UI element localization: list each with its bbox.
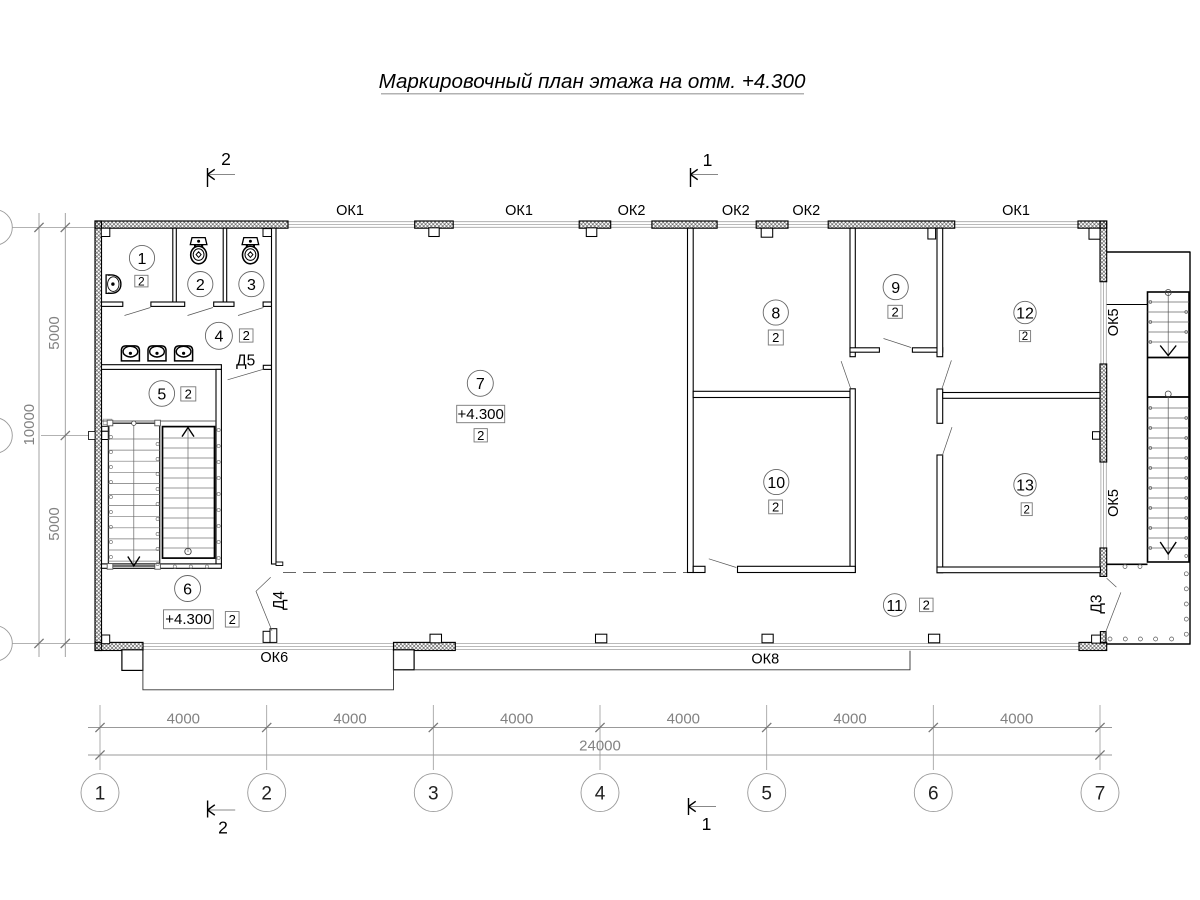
svg-text:Д5: Д5 [236, 353, 255, 370]
svg-text:1: 1 [703, 150, 713, 170]
svg-text:3: 3 [247, 277, 256, 294]
svg-text:8: 8 [771, 305, 780, 322]
svg-text:2: 2 [243, 328, 250, 343]
svg-text:Д4: Д4 [271, 590, 288, 609]
svg-text:4: 4 [595, 783, 606, 804]
svg-text:2: 2 [1023, 504, 1029, 516]
svg-text:ОК5: ОК5 [1106, 489, 1122, 517]
svg-text:2: 2 [923, 598, 930, 613]
svg-text:ОК2: ОК2 [792, 203, 820, 219]
svg-text:ОК1: ОК1 [336, 203, 364, 219]
svg-text:Д3: Д3 [1089, 594, 1106, 613]
svg-text:2: 2 [1022, 331, 1028, 343]
svg-text:13: 13 [1016, 477, 1034, 494]
svg-text:ОК2: ОК2 [618, 203, 646, 219]
svg-text:5: 5 [761, 783, 772, 804]
svg-text:5: 5 [157, 386, 166, 403]
svg-text:2: 2 [477, 428, 484, 443]
svg-text:4: 4 [214, 329, 223, 346]
svg-text:11: 11 [886, 598, 903, 615]
svg-text:5000: 5000 [46, 316, 63, 349]
svg-text:ОК1: ОК1 [505, 203, 533, 219]
svg-text:Маркировочный план этажа на от: Маркировочный план этажа на отм. +4.300 [379, 70, 806, 93]
svg-text:+4.300: +4.300 [458, 406, 504, 423]
svg-text:3: 3 [428, 783, 439, 804]
svg-text:2: 2 [772, 500, 779, 515]
svg-text:2: 2 [185, 387, 192, 402]
svg-text:ОК1: ОК1 [1002, 203, 1030, 219]
svg-text:7: 7 [1095, 783, 1106, 804]
svg-text:2: 2 [261, 783, 272, 804]
svg-text:2: 2 [196, 277, 205, 294]
svg-text:1: 1 [702, 814, 712, 834]
svg-text:2: 2 [218, 818, 228, 838]
svg-text:5000: 5000 [46, 507, 63, 540]
svg-text:ОК2: ОК2 [722, 203, 750, 219]
svg-text:10: 10 [767, 475, 785, 492]
svg-text:24000: 24000 [579, 738, 621, 755]
svg-text:1: 1 [95, 783, 106, 804]
svg-text:7: 7 [476, 376, 485, 393]
svg-text:2: 2 [138, 274, 145, 288]
svg-text:ОК6: ОК6 [260, 650, 288, 666]
svg-text:2: 2 [229, 612, 236, 627]
svg-text:2: 2 [891, 304, 898, 319]
svg-text:4000: 4000 [167, 711, 200, 728]
svg-text:+4.300: +4.300 [165, 611, 211, 628]
svg-text:4000: 4000 [500, 711, 533, 728]
svg-text:12: 12 [1016, 305, 1034, 322]
svg-text:4000: 4000 [1000, 711, 1033, 728]
svg-text:4000: 4000 [333, 711, 366, 728]
svg-text:2: 2 [772, 330, 779, 345]
svg-text:4000: 4000 [667, 711, 700, 728]
svg-text:2: 2 [221, 149, 231, 169]
svg-text:6: 6 [928, 783, 939, 804]
svg-text:ОК5: ОК5 [1106, 308, 1122, 336]
svg-text:4000: 4000 [833, 711, 866, 728]
svg-text:ОК8: ОК8 [751, 652, 779, 668]
svg-text:6: 6 [183, 581, 192, 598]
svg-text:9: 9 [891, 280, 900, 297]
svg-text:1: 1 [138, 251, 147, 268]
svg-text:10000: 10000 [21, 404, 38, 446]
